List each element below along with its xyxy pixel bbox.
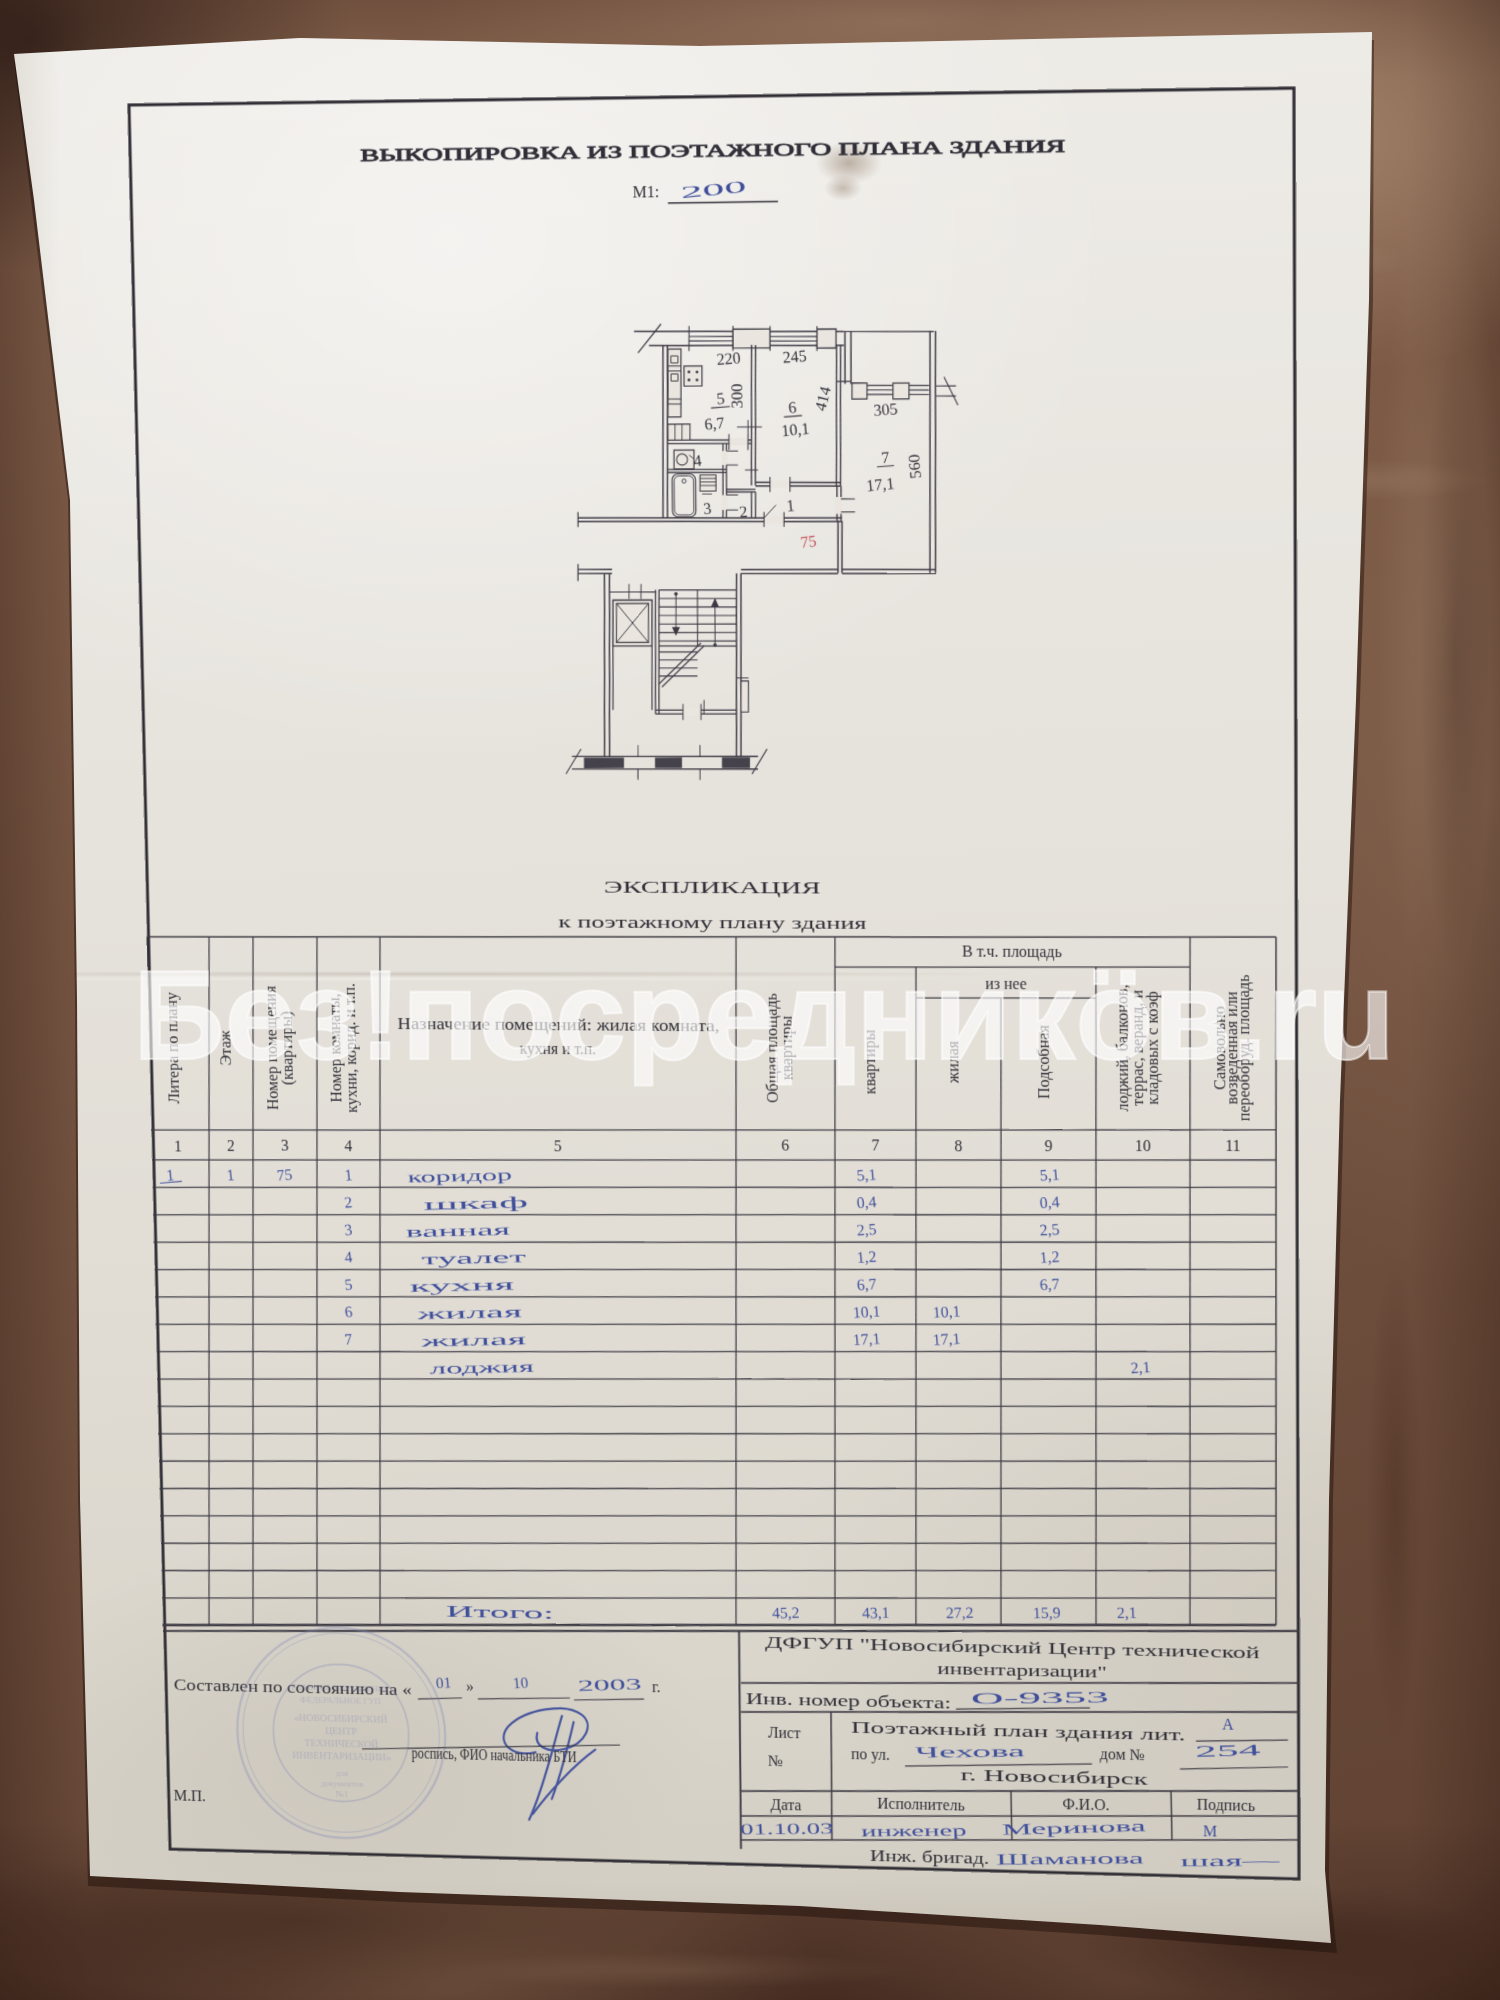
svg-text:Без!посредникöв.ru: Без!посредникöв.ru (133, 944, 1395, 1086)
